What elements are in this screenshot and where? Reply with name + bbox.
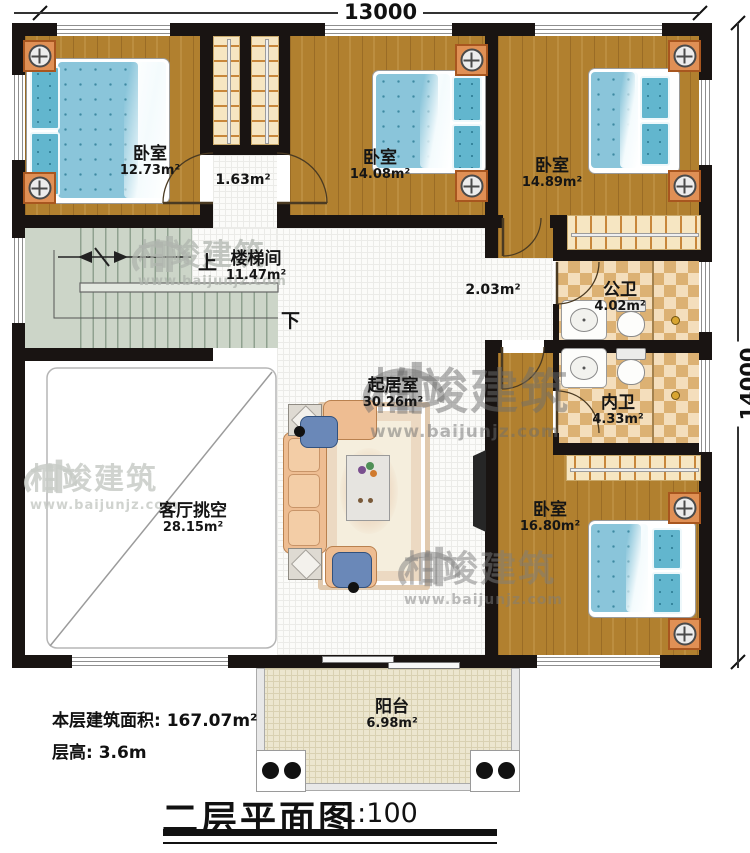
watermark-logo-icon — [22, 454, 82, 508]
room-label-bedroom-1: 卧室 12.73m² — [120, 145, 180, 178]
sliding-door — [322, 656, 394, 663]
nightstand — [23, 172, 56, 204]
sink — [561, 348, 607, 388]
flower-icon — [370, 470, 377, 477]
window — [699, 262, 712, 332]
wall — [553, 304, 559, 340]
lamp-icon — [673, 497, 696, 520]
window — [12, 75, 25, 160]
wall — [485, 228, 498, 258]
stairs-down-label: 下 — [281, 306, 300, 333]
wall — [553, 353, 559, 391]
column-icon — [476, 762, 493, 779]
nightstand — [455, 44, 488, 76]
person-figure — [300, 416, 338, 448]
wardrobe — [213, 36, 240, 145]
watermark-brand: 柏竣建筑 — [30, 454, 179, 498]
title-underline — [163, 829, 497, 836]
wardrobe — [566, 455, 701, 481]
wall — [544, 340, 553, 353]
sofa-cushion — [288, 510, 320, 546]
window — [699, 80, 712, 165]
pillow — [452, 124, 482, 170]
cabinet-divider — [652, 261, 654, 340]
room-label-living-room: 起居室 30.26m² — [363, 377, 423, 410]
toilet — [617, 359, 645, 385]
window — [535, 23, 662, 36]
room-label-private-bathroom: 内卫 4.33m² — [592, 394, 643, 427]
window — [537, 655, 660, 668]
hallway-floor — [485, 258, 553, 340]
wardrobe — [251, 36, 279, 145]
window — [325, 23, 452, 36]
window — [72, 655, 228, 668]
stair-upper-flight — [80, 228, 192, 283]
window — [57, 23, 170, 36]
nightstand — [668, 618, 701, 650]
flower-icon — [358, 466, 366, 474]
basin-icon — [570, 356, 598, 380]
lamp-icon — [673, 175, 696, 198]
title-underline-thin — [163, 842, 497, 844]
stair-side — [55, 283, 80, 348]
nightstand — [23, 40, 56, 72]
dimension-right-label: 14000 — [737, 341, 750, 426]
floor-area-text: 本层建筑面积: 167.07m² — [52, 706, 257, 731]
room-label-living-void: 客厅挑空 28.15m² — [159, 502, 227, 535]
table-dot — [358, 498, 363, 503]
room-label-public-bathroom: 公卫 4.02m² — [594, 281, 645, 314]
room-label-bedroom-3: 卧室 14.89m² — [522, 157, 582, 190]
room-label-hallway: 2.03m² — [465, 283, 520, 298]
wardrobe — [567, 215, 701, 250]
floor-height-text: 层高: 3.6m — [52, 738, 147, 763]
column-icon — [284, 762, 301, 779]
nightstand — [668, 170, 701, 202]
nightstand — [668, 492, 701, 524]
wall — [12, 215, 213, 228]
window — [12, 238, 25, 323]
corridor-floor-upper — [498, 215, 553, 258]
nightstand — [668, 40, 701, 72]
room-label-bedroom-2: 卧室 14.08m² — [350, 149, 410, 182]
pillow — [640, 122, 670, 166]
pillow — [640, 76, 670, 120]
stair-lower-flight — [80, 292, 278, 348]
nightstand — [455, 170, 488, 202]
lamp-icon — [460, 175, 483, 198]
lamp-icon — [28, 177, 51, 200]
lamp-icon — [28, 45, 51, 68]
cabinet-divider — [652, 353, 654, 443]
wall — [553, 443, 699, 455]
flower-icon — [366, 462, 374, 470]
dimension-top-label: 13000 — [338, 0, 423, 24]
column-icon — [498, 762, 515, 779]
stairs-up-label: 上 — [198, 248, 217, 275]
watermark-url: www.baijunjz.com — [30, 498, 179, 513]
wall — [485, 340, 502, 353]
column-icon — [262, 762, 279, 779]
room-label-balcony: 阳台 6.98m² — [366, 698, 417, 731]
pillow — [652, 572, 682, 614]
person-head — [294, 426, 305, 437]
cabinet-knob-icon — [671, 391, 680, 400]
sliding-door — [388, 662, 460, 669]
lamp-icon — [673, 623, 696, 646]
room-label-vestibule: 1.63m² — [215, 173, 270, 188]
pillow — [30, 66, 60, 130]
bed-sheet-fold — [620, 72, 638, 168]
lamp-icon — [460, 49, 483, 72]
pillow — [452, 76, 482, 122]
side-table — [288, 548, 322, 580]
room-label-bedroom-4: 卧室 16.80m² — [520, 501, 580, 534]
window — [699, 360, 712, 452]
sofa-cushion — [288, 474, 320, 508]
wall — [485, 353, 498, 655]
bed-sheet-fold — [626, 524, 648, 612]
person-head — [348, 582, 359, 593]
plan-scale: 1:100 — [340, 798, 418, 829]
lamp-icon — [673, 45, 696, 68]
wall — [277, 215, 503, 228]
floor-plan: 13000 14000 柏竣建筑 www.baijunjz.com 柏竣建筑 w… — [0, 0, 750, 853]
wall — [553, 433, 559, 443]
toilet — [617, 311, 645, 337]
wall — [12, 348, 213, 361]
wall — [200, 23, 213, 155]
cabinet-knob-icon — [671, 316, 680, 325]
table-dot — [368, 498, 373, 503]
room-label-stairwell: 楼梯间 11.47m² — [226, 250, 286, 283]
watermark: 柏竣建筑 www.baijunjz.com — [22, 454, 179, 513]
bed-sheet-fold — [420, 74, 450, 168]
pillow — [652, 528, 682, 570]
